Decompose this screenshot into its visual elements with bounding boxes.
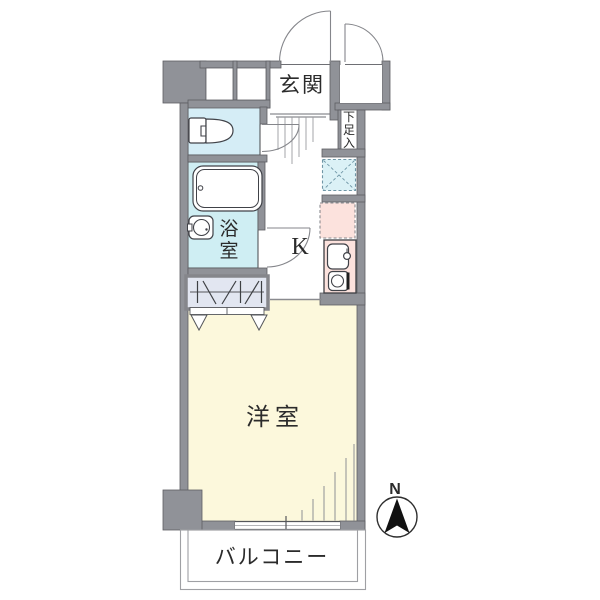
entry-door-swing-arc <box>280 11 331 62</box>
wall-stub-fridge-top <box>322 195 365 202</box>
wall-toilet-right <box>260 107 267 124</box>
wall-toilet-bath-divider <box>188 155 267 162</box>
wall-left-outer <box>180 103 188 530</box>
floor-plan-drawing: N 玄関 下 足 入 浴 室 K 洋室 バルコニー <box>0 0 600 600</box>
toilet-door-swing-arc <box>262 125 299 152</box>
fridge-space-box <box>320 203 355 238</box>
genkan-label: 玄関 <box>279 73 325 97</box>
floor-plan-canvas: N 玄関 下 足 入 浴 室 K 洋室 バルコニー <box>0 0 600 600</box>
wall-stub-washer-top <box>322 149 365 157</box>
wall-top-left-block <box>163 61 206 103</box>
washbasin-drain <box>205 228 207 230</box>
washbasin-icon <box>188 216 214 239</box>
meter-box-1 <box>206 68 233 100</box>
wall-kitchen-bottom <box>320 293 365 305</box>
entrance-doors <box>280 11 384 62</box>
toilet-door <box>262 125 299 152</box>
bath-char-2: 室 <box>219 240 238 262</box>
bath-char-1: 浴 <box>219 218 238 240</box>
shoebox-char-1: 下 <box>343 110 355 124</box>
wall-right-outer <box>357 110 365 530</box>
toilet-icon <box>189 118 233 143</box>
bathtub-icon <box>193 166 262 211</box>
toilet-tank <box>189 118 206 143</box>
kitchen-faucet <box>344 253 351 260</box>
wall-under-squares <box>188 100 270 108</box>
wall-bottom-right-seg <box>340 521 365 530</box>
bathtub-outer <box>193 166 262 211</box>
wall-square-divider <box>233 61 237 100</box>
trunk-room <box>340 65 382 103</box>
washbasin-tap <box>188 224 193 231</box>
wall-under-right-room <box>335 103 390 110</box>
shoebox-char-3: 入 <box>343 136 355 150</box>
kitchen-counter <box>324 240 356 293</box>
compass-north-label: N <box>389 481 401 498</box>
shoebox-char-2: 足 <box>343 123 355 137</box>
kitchen-label: K <box>291 234 309 260</box>
wall-shoebox-left <box>338 110 341 149</box>
wall-bottom-left-block <box>163 490 202 530</box>
meter-box-2 <box>237 68 266 100</box>
kitchen-burner-control <box>347 273 350 290</box>
balcony-label: バルコニー <box>215 545 330 569</box>
washer-space <box>323 160 356 191</box>
entry-child-door-swing-arc <box>345 24 383 62</box>
western-room-label: 洋室 <box>246 404 304 431</box>
compass: N <box>377 481 417 537</box>
